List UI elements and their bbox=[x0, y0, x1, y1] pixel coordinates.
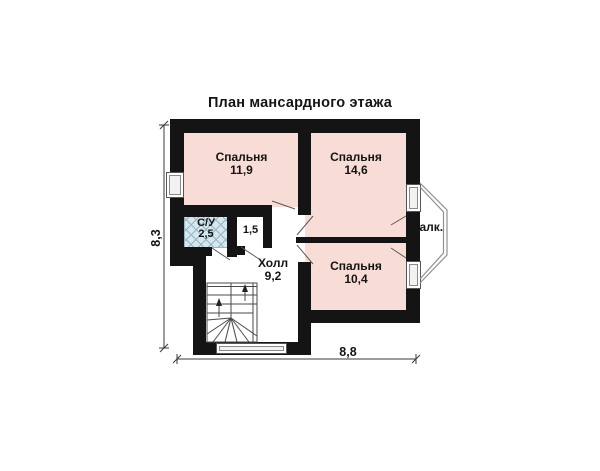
room-area: 10,4 bbox=[305, 273, 407, 286]
stairs-up-arrow bbox=[216, 298, 222, 306]
label-bathroom: С/У 2,5 bbox=[184, 218, 228, 240]
wall-bedrooms-divider-horizontal bbox=[296, 237, 413, 243]
label-closet: 1,5 bbox=[237, 224, 264, 237]
floor-plan: План мансардного этажа bbox=[0, 0, 600, 471]
window-bottom-icon bbox=[216, 343, 287, 354]
room-bedroom-2-fill bbox=[305, 132, 407, 239]
dimension-height-label: 8,3 bbox=[149, 221, 165, 255]
window-pane bbox=[409, 264, 418, 286]
window-pane bbox=[169, 175, 181, 195]
wall-closet-right bbox=[263, 205, 272, 248]
room-area: 9,2 bbox=[243, 270, 303, 283]
room-area: 14,6 bbox=[305, 164, 407, 177]
wall-top bbox=[170, 119, 420, 133]
label-balcony: Балк. bbox=[408, 221, 446, 234]
room-name: Балк. bbox=[408, 221, 446, 234]
stairs-icon bbox=[207, 283, 257, 342]
dimension-width-label: 8,8 bbox=[320, 345, 376, 359]
room-area: 2,5 bbox=[184, 229, 228, 240]
wall-closet-bottom bbox=[227, 246, 245, 255]
wall-wing-left bbox=[193, 255, 206, 355]
stairs-up-arrow bbox=[242, 284, 248, 292]
label-hall: Холл 9,2 bbox=[243, 257, 303, 283]
room-area: 11,9 bbox=[183, 164, 300, 177]
dimension-horizontal bbox=[173, 354, 420, 364]
wall-bathroom-bottom bbox=[184, 247, 212, 256]
plan-title: План мансардного этажа bbox=[100, 95, 500, 111]
window-pane bbox=[409, 187, 418, 209]
window-left-icon bbox=[166, 172, 184, 198]
label-bedroom-1: Спальня 11,9 bbox=[183, 151, 300, 177]
wall-bedroom3-bottom bbox=[298, 310, 420, 323]
window-balcony-top-icon bbox=[406, 184, 421, 212]
window-pane bbox=[219, 346, 284, 351]
plan-lines bbox=[0, 0, 600, 471]
label-bedroom-2: Спальня 14,6 bbox=[305, 151, 407, 177]
label-bedroom-3: Спальня 10,4 bbox=[305, 260, 407, 286]
room-area: 1,5 bbox=[237, 224, 264, 237]
window-balcony-bottom-icon bbox=[406, 261, 421, 289]
